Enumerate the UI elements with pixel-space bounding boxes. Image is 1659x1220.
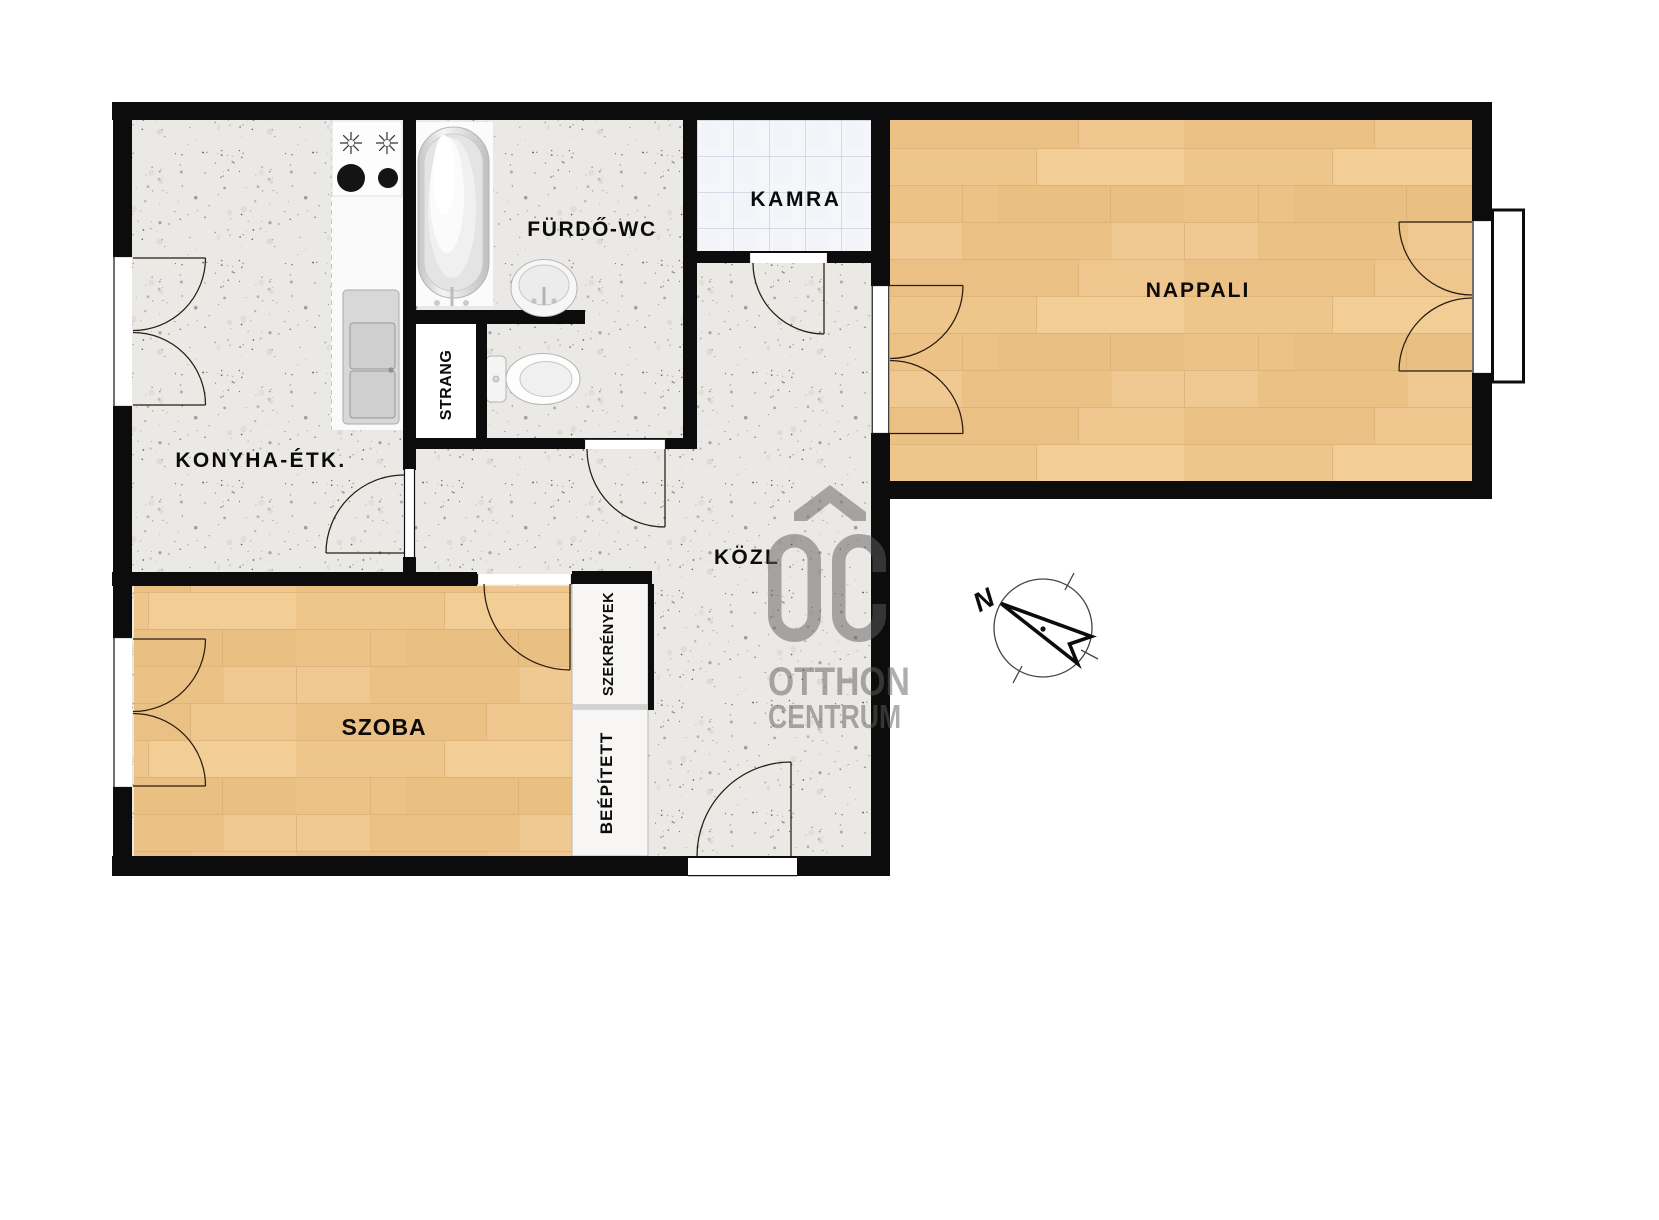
svg-text:SZEKRÉNYEK: SZEKRÉNYEK xyxy=(600,592,617,696)
svg-text:OTTHON: OTTHON xyxy=(768,659,910,704)
svg-text:NAPPALI: NAPPALI xyxy=(1146,279,1251,302)
svg-text:KONYHA-ÉTK.: KONYHA-ÉTK. xyxy=(175,449,346,472)
svg-text:KAMRA: KAMRA xyxy=(750,188,841,211)
svg-text:SZOBA: SZOBA xyxy=(342,714,427,740)
svg-text:STRANG: STRANG xyxy=(438,350,455,421)
svg-text:BEÉPÍTETT: BEÉPÍTETT xyxy=(597,732,616,835)
svg-text:FÜRDŐ-WC: FÜRDŐ-WC xyxy=(527,218,656,241)
svg-text:CENTRUM: CENTRUM xyxy=(768,699,901,736)
